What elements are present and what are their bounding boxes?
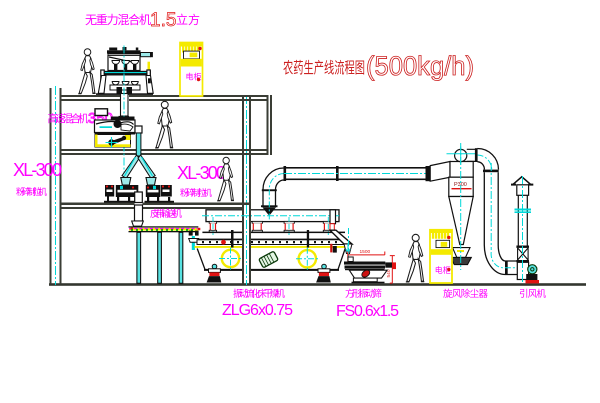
svg-text:引风机: 引风机 (519, 288, 546, 300)
svg-text:粉碎制粒机: 粉碎制粒机 (16, 186, 47, 197)
svg-text:XL-300: XL-300 (13, 160, 62, 180)
svg-text:方形振动筛: 方形振动筛 (345, 288, 382, 300)
svg-text:粉碎制粒机: 粉碎制粒机 (180, 187, 212, 198)
svg-text:皮带输送机: 皮带输送机 (150, 208, 182, 220)
svg-text:FS0.6x1.5: FS0.6x1.5 (336, 303, 399, 320)
svg-text:1500: 1500 (360, 249, 371, 255)
svg-text:高速混合机: 高速混合机 (48, 112, 90, 125)
svg-text:振动流化床干燥机: 振动流化床干燥机 (233, 288, 285, 300)
svg-text:ZLG6x0.75: ZLG6x0.75 (222, 302, 293, 319)
svg-text:无重力混合机: 无重力混合机 (85, 12, 151, 27)
svg-text:旋风除尘器: 旋风除尘器 (443, 288, 488, 300)
svg-text:(500kg/h): (500kg/h) (366, 51, 474, 81)
svg-text:1.5: 1.5 (150, 10, 176, 31)
svg-text:立方: 立方 (176, 12, 200, 27)
svg-text:XL-300: XL-300 (177, 163, 226, 183)
svg-text:农药生产线流程图: 农药生产线流程图 (283, 59, 365, 77)
